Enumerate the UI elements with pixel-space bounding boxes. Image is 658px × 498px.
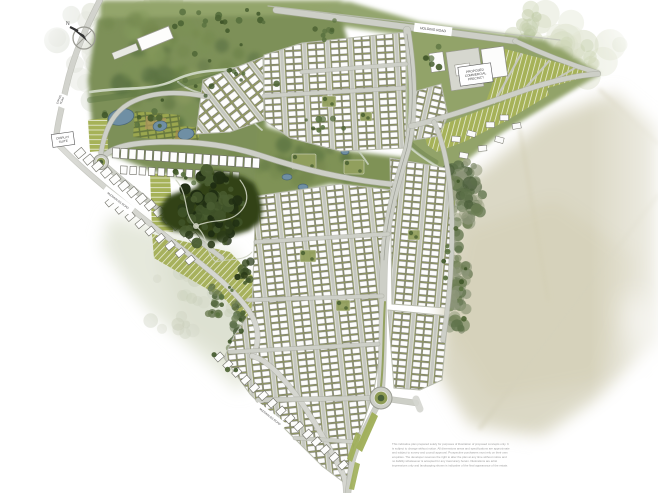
svg-text:impressions only and landscapi: impressions only and landscaping shown i… [392, 464, 508, 468]
svg-text:N: N [66, 21, 70, 27]
